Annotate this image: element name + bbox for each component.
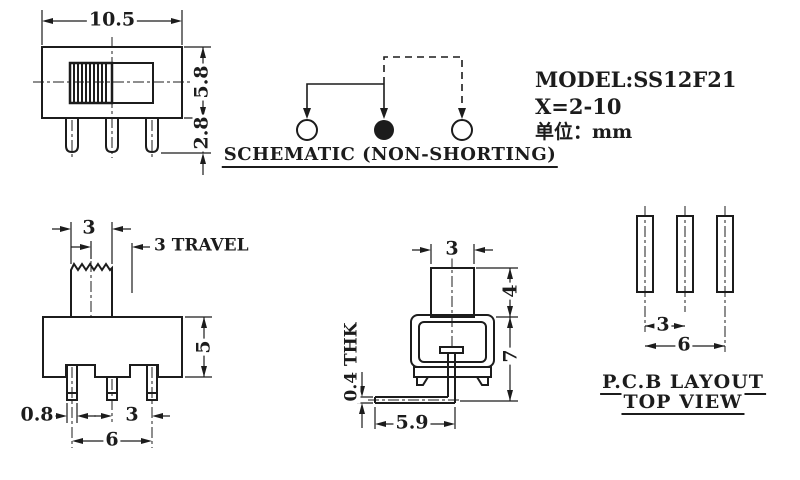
- end-view-lines: [357, 244, 518, 429]
- pcb-caption-line2: TOP VIEW: [621, 393, 744, 415]
- dim-front-width: 10.5: [87, 11, 137, 30]
- dim-side-pin-pitch: 3: [123, 406, 140, 425]
- dim-front-height: 5.8: [193, 63, 212, 100]
- dim-side-pin-width: 0.8: [18, 406, 55, 425]
- dim-pcb-hole-span: 6: [675, 336, 692, 355]
- dim-side-pin-span: 6: [103, 431, 120, 450]
- dim-side-travel: 3 TRAVEL: [152, 238, 251, 255]
- dim-end-overall-height: 7: [502, 347, 521, 364]
- dim-side-body-height: 5: [195, 338, 214, 355]
- dim-pcb-hole-pitch: 3: [654, 316, 671, 335]
- pcb-layout-lines: [637, 206, 733, 352]
- model-variant: X=2-10: [535, 96, 621, 117]
- dim-side-knob-width: 3: [80, 219, 97, 238]
- model-number: MODEL:SS12F21: [535, 69, 737, 90]
- dim-end-knob-height: 4: [502, 282, 521, 299]
- schematic-caption: SCHEMATIC (NON-SHORTING): [222, 146, 558, 168]
- dim-front-pin-length: 2.8: [193, 114, 212, 151]
- technical-drawing: 10.5 5.8 2.8 SCHEMATIC (NON-SHORTING) MO…: [0, 0, 800, 480]
- front-view-lines: [33, 10, 211, 175]
- unit-label: 单位：mm: [535, 123, 632, 142]
- dim-end-lead-thickness: 0.4 THK: [344, 321, 361, 404]
- dim-end-lead-length: 5.9: [393, 414, 430, 433]
- schematic-lines: [297, 57, 472, 140]
- dim-end-knob-width: 3: [443, 240, 460, 259]
